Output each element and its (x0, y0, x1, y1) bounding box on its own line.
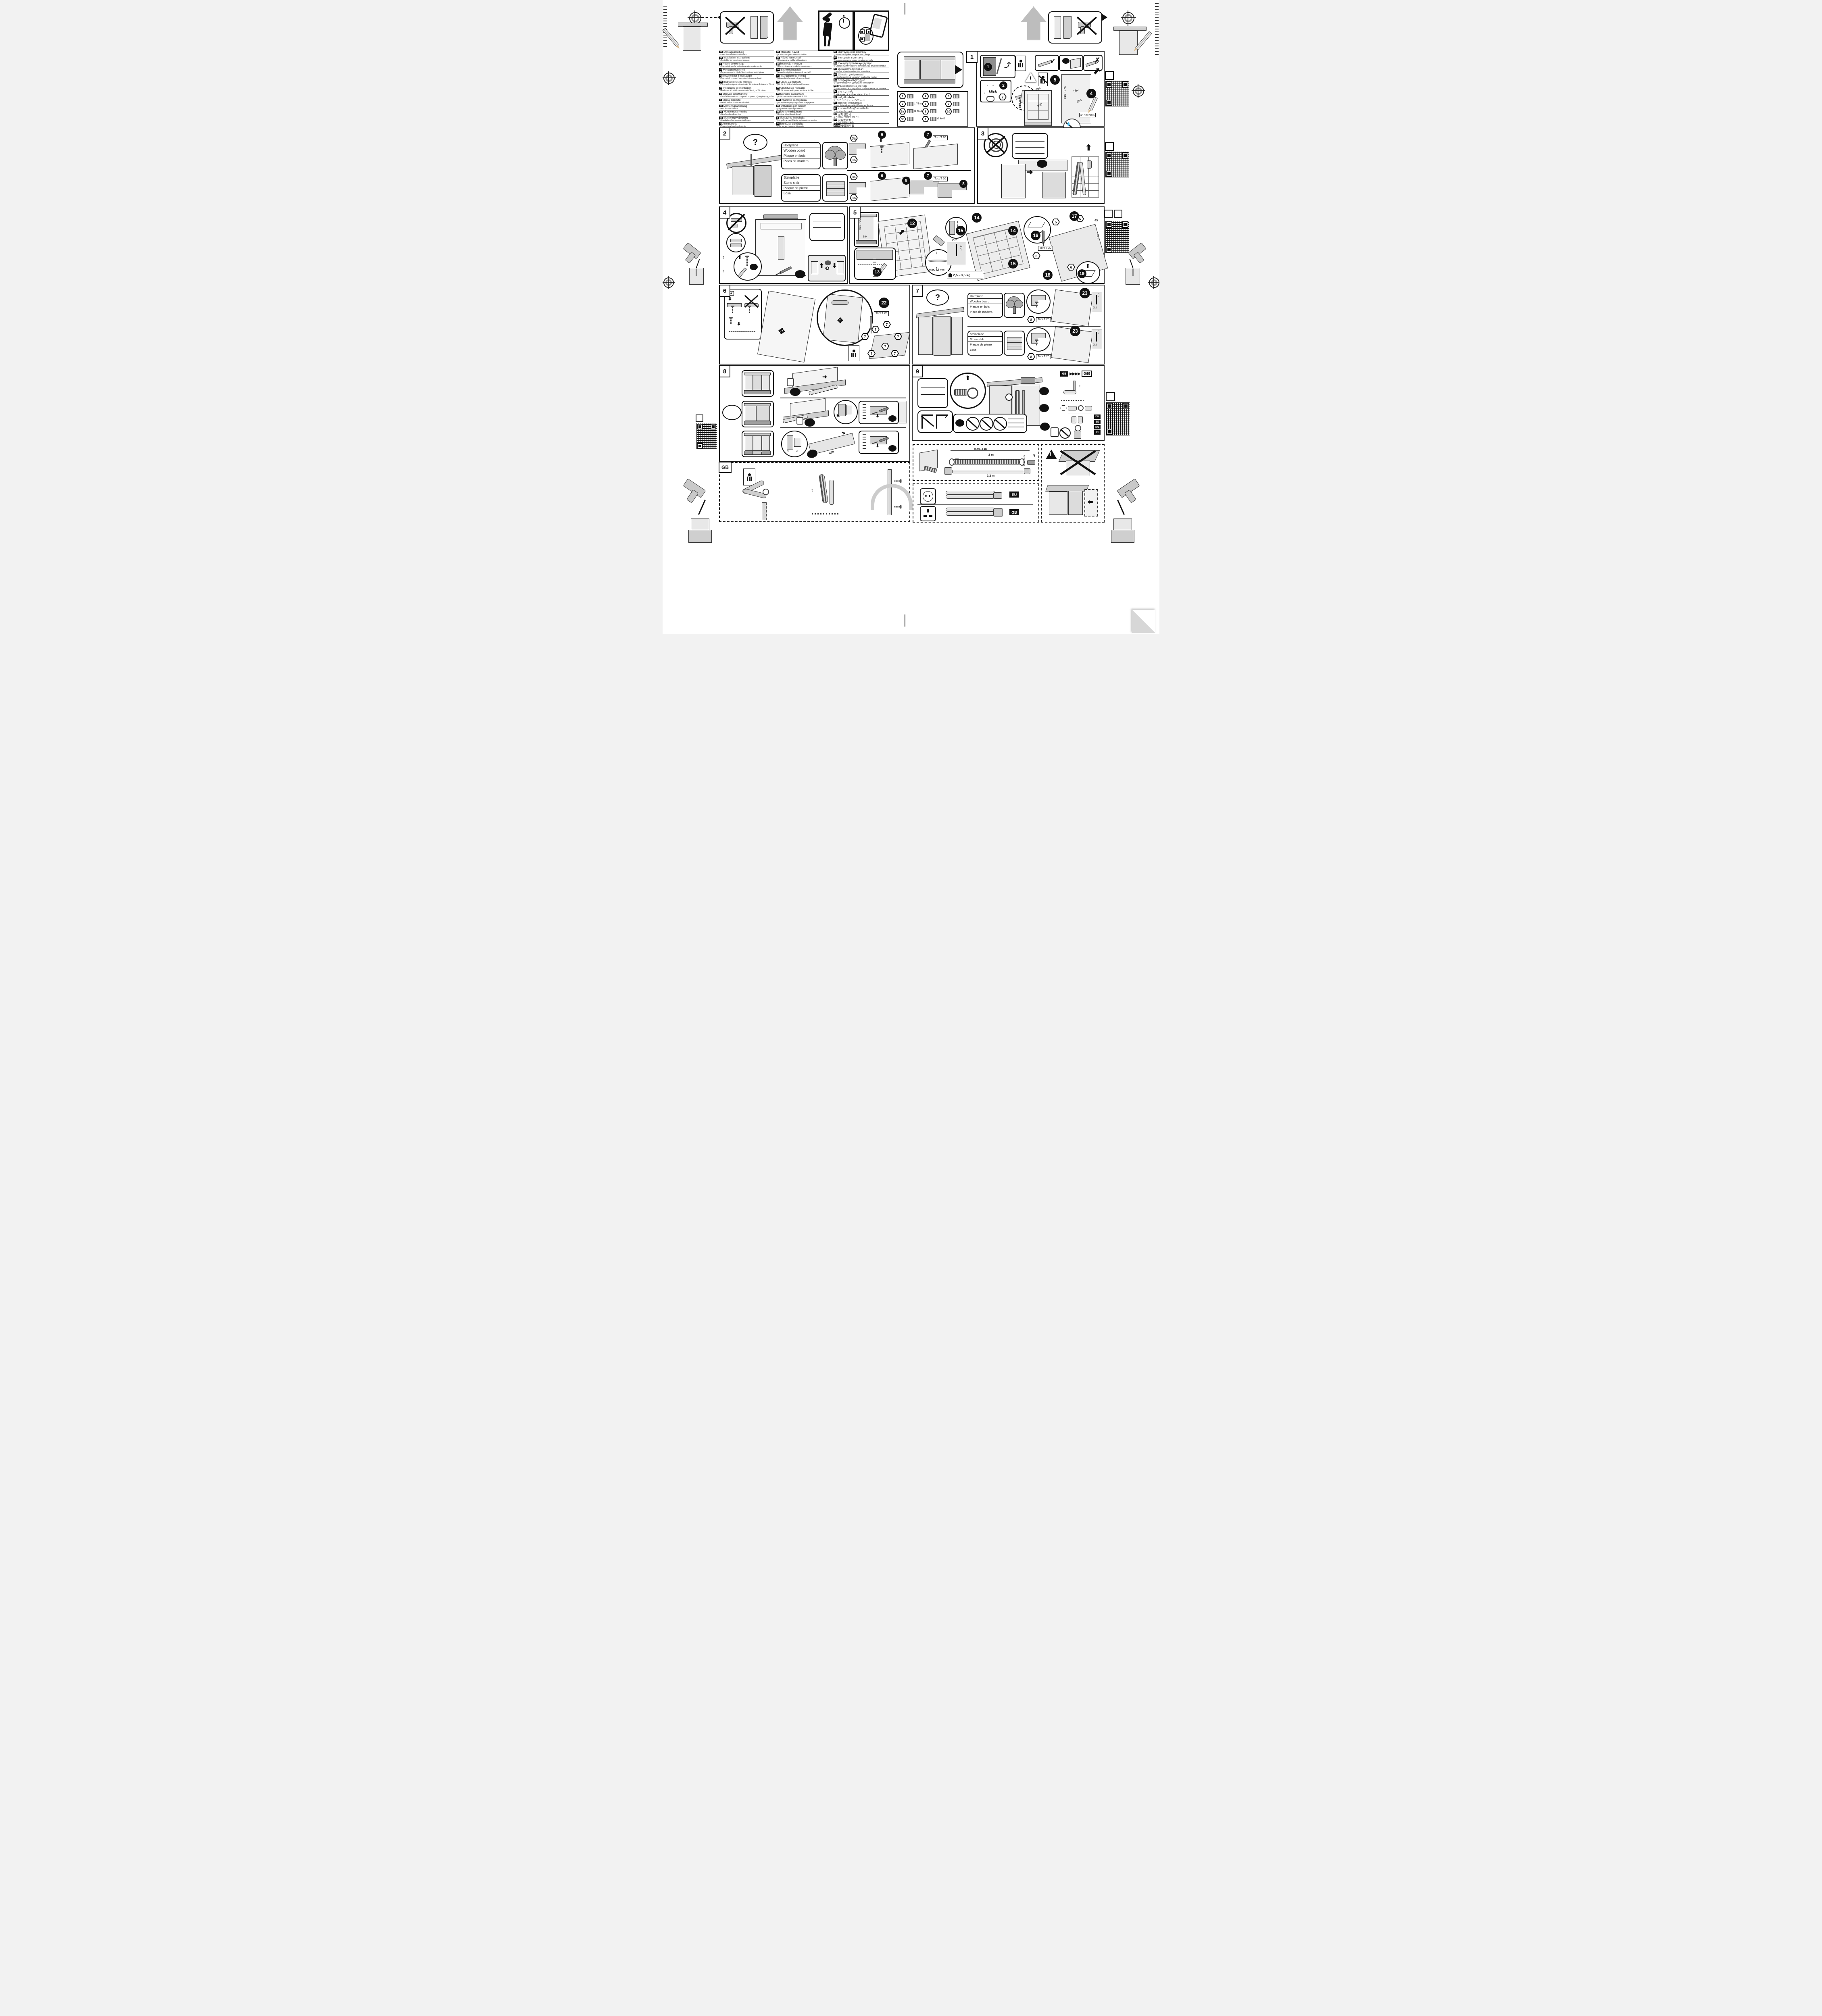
language-row: ruИнструкция по монтажу *) Можно получит… (834, 50, 889, 56)
drain-hose-height: ↕ (809, 471, 857, 518)
blank-note-box (917, 378, 948, 408)
transport-warning-box: ⬅ (1041, 444, 1105, 523)
part-item: 3a Ø 4x16 (899, 108, 921, 115)
qr-code-1 (1105, 81, 1129, 106)
label-losa: Losa (782, 191, 820, 196)
pliers-icon (739, 481, 775, 505)
language-title: Іске қосу туралы нұсқаулар! (838, 62, 871, 65)
part-glyph (907, 117, 913, 121)
language-note: *) Сервис қызмет көрсету орталығында алу… (834, 65, 889, 67)
language-note: *) fåes hos kundeservice (719, 113, 774, 116)
no-drill-panel-types-box-right (1048, 11, 1102, 44)
language-note: *) Διατίθενται από την υπηρεσία τεχνικής… (719, 96, 774, 98)
dim-470: 470 (829, 450, 834, 455)
part-item: 3b (899, 115, 921, 123)
part-ref-hex: 3b (899, 116, 906, 122)
clip-zoom-circle: ◣ (834, 400, 858, 424)
check-icon: ✓ (944, 414, 949, 420)
hole-template: ~12 Ø 2 (1092, 292, 1102, 312)
dispose-icon (848, 345, 859, 361)
language-note: *) ხელმისაწვდომი კლიენტთა სამსახურში (834, 82, 889, 84)
language-note: *) Можно получить в сервисном центре (834, 54, 889, 56)
language-row: faراهنمئى مونتاژ *) از مرکز خدمات پس از … (834, 90, 889, 96)
stone-label-box: Steinplatte Stone slab Plaque de pierre … (967, 331, 1003, 356)
language-code-badge: mk (776, 99, 781, 102)
gb-big-tag: GB (1082, 371, 1092, 377)
bricks-icon-box (822, 174, 848, 202)
aquastop-zoom-circle: ⬆ (950, 373, 986, 409)
height-arrows: ↕ (722, 255, 725, 260)
language-note: *) Müştəri xidmətlərindən əldə oluna bil… (834, 71, 889, 73)
country-fi: FI (1094, 430, 1101, 435)
language-note: *) može dobiti kod službe održavanja (776, 83, 832, 86)
gb-small-tag: GB (1060, 371, 1068, 377)
language-note: *) Sigurohet nëpërmjet servisit (776, 108, 832, 110)
dim-155: 155 (1096, 234, 1100, 239)
label-wooden-board: Wooden board (782, 148, 820, 153)
right-edge-ruler (1155, 3, 1159, 56)
callout-dot-water (1039, 404, 1049, 412)
arrow-down: ⬇ (832, 262, 837, 269)
language-code-badge: ar (834, 96, 837, 99)
drill-icon (933, 235, 945, 246)
part-ref-hex: 7 (922, 116, 929, 122)
part-ref-6b: 6 (1067, 264, 1075, 271)
dim-o2b: Ø 2 (1093, 344, 1097, 346)
language-row: plInstrukcja montażu *) Do uzyskania w p… (776, 62, 832, 69)
drill-clamp-illustration-bottom-right (1106, 480, 1142, 544)
callout-23: 23 (1080, 288, 1090, 298)
gb-tag: GB (1009, 509, 1019, 515)
step-checkbox-4 (696, 414, 703, 422)
plinth-strip-470: 470 ⬊ (807, 428, 859, 460)
screw-ref-7: 7 (871, 326, 880, 333)
language-code-badge: ru (834, 51, 837, 54)
screw-ref-7: 7 (881, 343, 889, 350)
dw-back-sketch (917, 450, 945, 475)
tree-icon-box (1004, 293, 1025, 318)
sink-bowl (1021, 377, 1035, 384)
blank-note-box (809, 213, 845, 241)
label-losa: Losa (968, 347, 1002, 352)
gb-redirect-row: GB ▶▶▶▶ GB (1060, 369, 1102, 378)
klick-inset: 2 klick 2 (980, 80, 1011, 102)
torx-label: Torx T 20 (1038, 246, 1053, 251)
part-item: 5 (922, 100, 944, 108)
callout-14: 14 (972, 213, 982, 223)
language-code-badge: da (719, 117, 723, 120)
counter-corner-sketch2 (913, 144, 958, 169)
language-note: *) يمكن طلبها من مراكز خدمة العملاء (834, 99, 889, 101)
registration-target-left-mid (663, 277, 674, 288)
language-row: mkУпатство за монтажа *) се добива преку… (776, 98, 832, 104)
label-plaque-en-bois: Plaque en bois (782, 153, 820, 158)
installer-time-box (818, 10, 854, 51)
label-placa-de-madera: Placa de madera (968, 309, 1002, 314)
language-title: Інструкція з монтажу (838, 56, 863, 59)
language-code-badge: ro (776, 75, 780, 77)
language-code-badge: kk (834, 62, 837, 65)
language-title: Instrukcja montażu (780, 62, 802, 65)
stone-label-box: Steinplatte Stone slab Plaque de pierre … (781, 174, 821, 202)
label-plaque-de-pierre: Plaque de pierre (782, 185, 820, 191)
language-row: idIntruksi Pemasangan *) bisa didapatkan… (834, 101, 889, 107)
wood-label-box: Holzplatte Wooden board Plaque en bois P… (967, 293, 1003, 318)
language-code-badge: tr (719, 99, 722, 102)
part-note: 1,75 m (914, 103, 921, 105)
insert-arrow: ⬅ (1088, 498, 1093, 506)
part-ref-6: 6 (1032, 252, 1040, 259)
gb-cord-icon (944, 505, 1005, 520)
dishwasher-door (920, 60, 940, 80)
part-ref-hex: 8 (945, 93, 952, 99)
panel4-frame: 4 ⬆ ↕ ↕ ⬆ ⟲ (719, 206, 848, 284)
peel-protective-circle: ⬆ 19 (1076, 261, 1100, 284)
dim-o2: Ø 2 (1093, 307, 1097, 309)
top-center-mark (905, 3, 905, 15)
part-ref-3a: 3a (850, 135, 858, 142)
plinth-cut-sketch-1: ➜ (780, 370, 861, 395)
label-stone-slab: Stone slab (782, 180, 820, 185)
language-note: *) kan fås via Service (719, 108, 774, 110)
torx-label: Torx T 20 (874, 311, 889, 316)
language-row: csMontážní návod *) K dispozici přes ser… (776, 50, 832, 56)
language-note: *) Можна отримати через сервісну службу (834, 59, 889, 62)
language-note: *) предоставя се от службата за обслужва… (834, 87, 889, 90)
bracket-glyph-stone (849, 182, 866, 194)
label-steinplatte: Steinplatte (968, 331, 1002, 337)
arrow-up: ⬆ (819, 262, 824, 269)
language-note: *) Do uzyskania w punkcie serwisowym (776, 65, 832, 68)
wall-hoses-sketch: ⬆ (1067, 144, 1101, 199)
language-title: Montavimo instrukcija (780, 117, 804, 119)
language-row: arتعليمات التركيب *) يمكن طلبها من مراكز… (834, 96, 889, 101)
language-code-badge: ko (834, 113, 837, 116)
bricks-icon-box (1004, 331, 1025, 356)
language-note: *) Lahko nabavite v servisni službi (776, 96, 832, 98)
callout-dot (805, 419, 815, 427)
country-se: SE (1094, 420, 1101, 424)
callout-13: 13 (873, 268, 882, 277)
eu-cord-icon (944, 488, 1005, 503)
panel1-intro-kitchen-box (897, 52, 963, 88)
language-note: *) Pode ser adquirido nos nossos Serviço… (719, 90, 774, 92)
qr-code-3 (1105, 221, 1129, 253)
language-note: *) obtenabilă la serviciul pentru clienț… (776, 77, 832, 80)
bracket-fixed-sketch (909, 180, 938, 194)
plug-rules (1050, 427, 1070, 439)
language-title: მონტაჟის ინსტრუქცია (838, 79, 865, 82)
no-open-door-sketch (1058, 448, 1100, 478)
cabinet-door (904, 60, 920, 80)
language-code-badge: nl (719, 69, 722, 71)
callout-6: 6 (878, 131, 886, 139)
language-row: enInstallation instructions *) Available… (719, 56, 774, 62)
bracket-zoom-circle: a b (781, 431, 808, 457)
up-arrow-left (777, 6, 803, 40)
language-code-badge: en (719, 57, 723, 60)
panel7-frame: 7 ? Holzplatte Wooden board Plaque en bo… (912, 285, 1105, 364)
pilot-hole-template: Ø 2 ~12 (947, 242, 966, 265)
language-title: Monteringsvejledning (723, 117, 748, 119)
language-row: sqUdhëzues për montim *) Sigurohet nëpër… (776, 104, 832, 110)
part-ref-hex: 10 (945, 108, 952, 115)
panel2-number: 2 (719, 127, 730, 140)
part-item: 7 Ø 4x42 (922, 115, 944, 123)
language-row: deMontageanleitung *) über Kundendienst … (719, 50, 774, 56)
language-row: srUputstvo za montažu *) Može se nabavit… (776, 86, 832, 92)
callout-4: 4 (1086, 89, 1096, 98)
panel1-frame: 1 1 ⤴ 2 klick 2 ✓ ✗ (976, 51, 1105, 127)
language-title: Asennusohje (722, 123, 737, 125)
language-code-badge: cs (776, 51, 780, 54)
dishwasher-front (755, 219, 806, 276)
cross-icon: ✗ (1094, 56, 1100, 65)
part-glyph (953, 102, 959, 106)
gb-arrows: ▶▶▶▶ (1069, 372, 1080, 376)
language-row: uzO'rnatish yo'riqnomasi *) mijozlarga x… (834, 73, 889, 79)
language-title: Intruksi Pemasangan (838, 102, 862, 104)
crop-dash-left (701, 17, 717, 18)
language-row: roInstrucțiune de montaj *) obtenabilă l… (776, 75, 832, 81)
rail-screw-inset (1059, 55, 1083, 71)
panel5-frame: 5 max. 725 594 12 ⬆ 13 ↓ ↑ max. 1,2 mm (849, 206, 1105, 284)
wood-label-box: Holzplatte Wooden board Plaque en bois P… (781, 142, 821, 169)
language-code-badge: el (719, 93, 722, 96)
registration-target-top-right (1122, 12, 1134, 24)
installation-sheet-page: deMontageanleitung *) über Kundendienst … (663, 0, 1159, 634)
language-row: nlMontagevoorschrift *) Tegen meerprijs … (719, 69, 774, 75)
language-note: *) Kan købes hos serviceafdelingen (719, 119, 774, 122)
language-note: *) Yetkili servis üzerinden alınabilir (719, 102, 774, 104)
dim-dia22: Ø 22 mm (1023, 455, 1026, 466)
label-holzplatte: Holzplatte (968, 294, 1002, 299)
language-row: svMonteringsanvisning *) kan fås via Ser… (719, 104, 774, 110)
panel-profile-icon (1054, 16, 1061, 39)
panel8-frame: 8 ➜ (719, 365, 910, 462)
callout-16: 16 (1031, 231, 1040, 240)
language-row: skNávod na montáž *) Dostanete v službe … (776, 56, 832, 62)
language-row: huSzerelési utasítás *) A vevőszolgálato… (776, 69, 832, 75)
pencil-mark-inset: 13 (854, 248, 896, 280)
plinth-variant-1 (742, 370, 774, 397)
language-code-badge: bg (834, 85, 838, 87)
language-row: kkІске қосу туралы нұсқаулар! *) Сервис … (834, 62, 889, 67)
part-ref-8b: 8 (1027, 353, 1035, 360)
language-title: Uputa za montažu (780, 81, 801, 83)
language-row: elΟδηγίες τοποθέτησης *) Διατίθενται από… (719, 92, 774, 98)
part-glyph (953, 109, 959, 113)
language-title: Monteringsanvisning (723, 105, 747, 108)
part-glyph (930, 109, 936, 113)
language-row: slNavodilo za montažo *) Lahko nabavite … (776, 92, 832, 98)
language-code-badge: it (719, 75, 721, 77)
foot-adjust-inset: ⬆ (734, 252, 762, 281)
page-corner-fold (1132, 610, 1155, 633)
callout-17: 17 (1069, 211, 1079, 221)
language-code-badge: pl (776, 63, 780, 66)
language-row: trMontaj kılavuzu *) Yetkili servis üzer… (719, 98, 774, 104)
up-arrow-right (1021, 6, 1047, 40)
part-note: Ø 4x16 (914, 110, 922, 112)
question-mark: ? (935, 293, 940, 302)
language-title: راهنمئى مونتاژ (838, 90, 853, 93)
language-code-badge: de (719, 51, 723, 54)
language-row: ukІнструкція з монтажу *) Можна отримати… (834, 56, 889, 62)
label-holzplatte: Holzplatte (782, 143, 820, 148)
panel-profile-icon (750, 16, 758, 39)
bracket-zoom-circle2 (1026, 327, 1051, 352)
hose-clamp-bracket (873, 469, 905, 519)
language-title: Montaj kılavuzu (723, 99, 740, 102)
label-wooden-board: Wooden board (968, 299, 1002, 304)
weight-icon (949, 273, 952, 277)
language-title: Installation instructions (723, 56, 750, 59)
pencil-marking-illustration-top-right (1113, 23, 1154, 56)
panel4-number: 4 (719, 206, 730, 219)
callout-dot-power (1040, 423, 1050, 431)
panel8-number: 8 (719, 365, 730, 377)
country-dk: DK (1094, 414, 1101, 419)
language-column-1: deMontageanleitung *) über Kundendienst … (719, 50, 774, 127)
tree-icon-box (822, 142, 848, 169)
dim-conduit: ≈100x50m (1079, 113, 1096, 117)
country-stack: DK SE NO FI (1087, 414, 1101, 438)
panel6-number: 6 (719, 285, 730, 297)
question-cloud: ? (926, 289, 949, 306)
dim-2-2m: 2,2 m (987, 474, 994, 477)
adjust-dial-inset-2: ⬇ (859, 431, 899, 454)
language-code-badge: th (834, 107, 837, 110)
callout-dot (795, 270, 805, 278)
part-ref-8: 8 (1027, 316, 1035, 323)
part-glyph (907, 109, 913, 113)
panel1-number: 1 (966, 51, 978, 63)
bracket-glyph (849, 144, 866, 155)
bottom-center-mark (905, 614, 905, 627)
part-ref-hex: 9 (945, 101, 952, 107)
language-row: daMonteringsvejledning *) Kan købes hos … (719, 117, 774, 123)
variant-cloud (722, 405, 742, 420)
dim-2m: 2 m (988, 453, 994, 456)
drain-hose (952, 459, 1021, 464)
language-note: *) mijozlarga xizmat ko'rsatish markazid… (834, 76, 889, 79)
blank-note-box (1012, 133, 1048, 159)
language-note: *) Disponibili presso il servizio assist… (719, 77, 774, 80)
language-code-badge: hr (776, 81, 780, 83)
panel5-number: 5 (849, 206, 861, 219)
part-ref-hex: 6 (922, 108, 929, 115)
qr-code-5 (1106, 402, 1130, 435)
label-plaque-de-pierre: Plaque de pierre (968, 342, 1002, 347)
language-code-badge: sv (719, 105, 723, 108)
step-checkbox-5 (1106, 392, 1115, 401)
callout-dot (888, 415, 896, 422)
panel9-number: 9 (912, 365, 923, 377)
dim-drill-diameter: Ø 2 (952, 238, 957, 242)
part-ref-hex: 4 (922, 93, 929, 99)
no-drill-panel-types-box-left (720, 11, 774, 44)
part-glyph (907, 102, 913, 106)
eu-tag: EU (1009, 492, 1019, 498)
part-item: 6 (922, 108, 944, 115)
callout-2: 2 (999, 81, 1007, 90)
registration-target-right-mid (1149, 277, 1159, 288)
callout-22: 22 (879, 298, 889, 308)
peel-protector-inset: 1 ⤴ (980, 55, 1015, 78)
part-ref-2: 2 (999, 94, 1007, 100)
language-row: azQuraşdırma təlimatları *) Müştəri xidm… (834, 67, 889, 73)
hose-lengths-box: max. 4 m 2 m Ø 22 mm *) 2,2 m (913, 444, 1039, 481)
language-note: *) A vevőszolgálaton keresztül kapható: (776, 71, 832, 74)
drill-dowel-illustration-left (681, 244, 713, 285)
language-code-badge: az (834, 68, 837, 71)
counter-corner-sketch (870, 142, 909, 168)
language-code-badge: sq (776, 105, 780, 108)
dim-12: ~12 (1098, 293, 1100, 297)
language-title: Montageanleitung (723, 51, 744, 54)
registration-target-left-edge (663, 73, 675, 84)
arrow-rotate: ⟲ (825, 265, 829, 272)
gap-ok-circle (726, 233, 746, 252)
step-checkbox-3a (1104, 210, 1113, 218)
no-dispose-icon (1038, 73, 1048, 86)
glue-pot (787, 378, 794, 386)
language-title: Monteerimisjuhend (780, 110, 802, 113)
step-checkbox-1 (1105, 71, 1114, 80)
language-row: ltMontavimo instrukcija *) Ją galima gau… (776, 117, 832, 123)
up-arrow: ⬆ (1085, 143, 1092, 153)
language-code-badge: pt (719, 87, 722, 90)
callout-dot (888, 445, 896, 452)
language-note: *) Disponible par le biais du service ap… (719, 65, 774, 68)
label-plaque-en-bois: Plaque en bois (968, 304, 1002, 309)
callout-14b: 14 (1008, 226, 1018, 235)
part-item: 2 1,75 m (899, 100, 921, 108)
callout-dot-drain (1039, 387, 1049, 395)
screwdriver-icon (1042, 231, 1044, 244)
siphon-sketch: ↕ (1061, 381, 1085, 403)
callout-23b: 23 (1070, 326, 1080, 336)
language-title: Návod na montáž (781, 56, 801, 59)
language-code-badge: fi (719, 123, 721, 125)
panel6-frame: 6 ok ⬇ ⬇ ✥ ✥ 22 Torx T 20 7 7 7 7 7 (719, 285, 910, 364)
weight-value: 2,5 - 8,5 kg (953, 273, 970, 277)
language-title: O'rnatish yo'riqnomasi (838, 73, 863, 76)
part-ref-hex: 1 (899, 93, 906, 99)
language-row: bgРъководство за монтаж *) предоставя се… (834, 84, 889, 90)
language-title: Instruções de montagem (723, 87, 751, 90)
step-checkbox-2 (1105, 142, 1114, 151)
language-column-3: ruИнструкция по монтажу *) Можно получит… (834, 50, 889, 127)
language-code-badge: ka (834, 79, 837, 82)
language-code-badge: id (834, 102, 837, 104)
language-title: Инструкция по монтажу (838, 51, 866, 54)
panel-profile-icon (760, 16, 768, 39)
check-valve-sketch (1071, 415, 1085, 438)
screw-ref-7: 7 (861, 333, 869, 340)
language-code-badge: lv (776, 123, 780, 125)
adjust-dial-inset-1: ⬇ (859, 401, 899, 424)
language-note: *) Dostanete v službe zákazníkom (776, 59, 832, 62)
language-note: *) Ją galima gauti klientų aptarnavimo s… (776, 119, 832, 122)
language-code-badge: fr (719, 63, 722, 66)
language-code-badge: uk (834, 56, 837, 59)
callout-dot (790, 388, 801, 396)
callout-15: 15 (956, 226, 965, 235)
question-mark: ? (753, 138, 758, 147)
part-item: 4 (922, 93, 944, 100)
